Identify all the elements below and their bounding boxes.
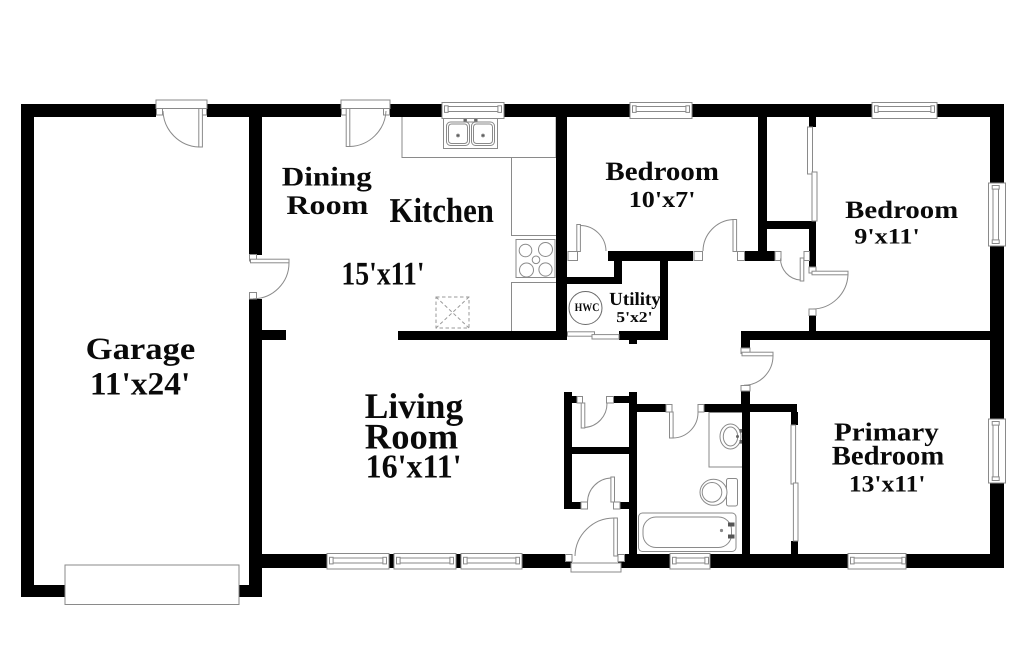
- svg-text:16'x11': 16'x11': [366, 449, 462, 486]
- svg-text:13'x11': 13'x11': [849, 471, 926, 497]
- svg-text:Bedroom: Bedroom: [845, 197, 958, 224]
- svg-text:10'x7': 10'x7': [629, 187, 696, 212]
- svg-text:15'x11': 15'x11': [341, 257, 424, 293]
- svg-text:Bedroom: Bedroom: [832, 441, 945, 471]
- svg-text:Utility: Utility: [609, 290, 661, 310]
- svg-text:9'x11': 9'x11': [854, 224, 920, 249]
- svg-text:11'x24': 11'x24': [90, 367, 190, 403]
- svg-text:Kitchen: Kitchen: [390, 191, 494, 230]
- svg-text:Bedroom: Bedroom: [605, 156, 719, 186]
- svg-text:Room: Room: [286, 190, 369, 220]
- svg-text:5'x2': 5'x2': [616, 310, 652, 326]
- svg-text:Dining: Dining: [282, 161, 373, 191]
- svg-text:Garage: Garage: [86, 331, 196, 366]
- svg-text:HWC: HWC: [575, 302, 600, 314]
